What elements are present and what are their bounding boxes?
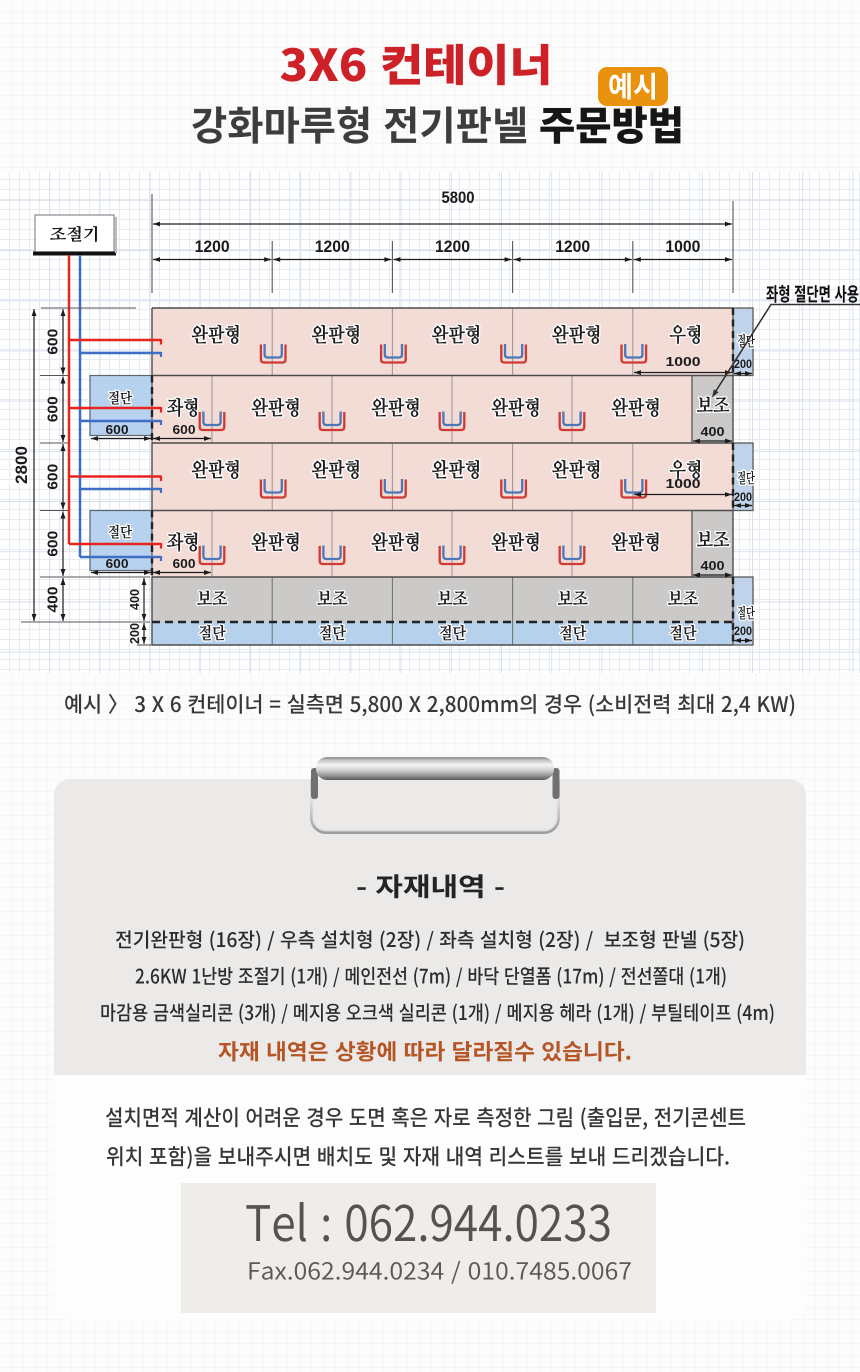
svg-text:1000: 1000	[666, 476, 701, 491]
svg-text:200: 200	[128, 623, 142, 644]
svg-text:600: 600	[46, 329, 62, 355]
svg-text:200: 200	[734, 359, 752, 371]
svg-text:600: 600	[45, 396, 61, 422]
svg-text:1200: 1200	[195, 238, 230, 256]
svg-text:600: 600	[46, 531, 62, 557]
svg-text:400: 400	[701, 424, 725, 439]
svg-text:200: 200	[734, 492, 752, 504]
svg-text:400: 400	[46, 587, 62, 613]
svg-text:1200: 1200	[315, 238, 350, 256]
svg-text:200: 200	[734, 626, 752, 638]
svg-text:1000: 1000	[665, 238, 700, 256]
svg-text:600: 600	[106, 422, 129, 437]
svg-text:600: 600	[173, 422, 196, 437]
svg-text:1200: 1200	[555, 238, 590, 256]
svg-text:5800: 5800	[442, 188, 475, 207]
svg-text:600: 600	[106, 556, 129, 571]
svg-text:400: 400	[701, 558, 725, 573]
svg-text:1000: 1000	[666, 354, 701, 369]
svg-text:2800: 2800	[12, 446, 31, 484]
svg-text:1200: 1200	[435, 238, 470, 256]
svg-text:600: 600	[173, 556, 196, 571]
svg-text:400: 400	[128, 589, 142, 610]
svg-text:600: 600	[46, 464, 62, 490]
